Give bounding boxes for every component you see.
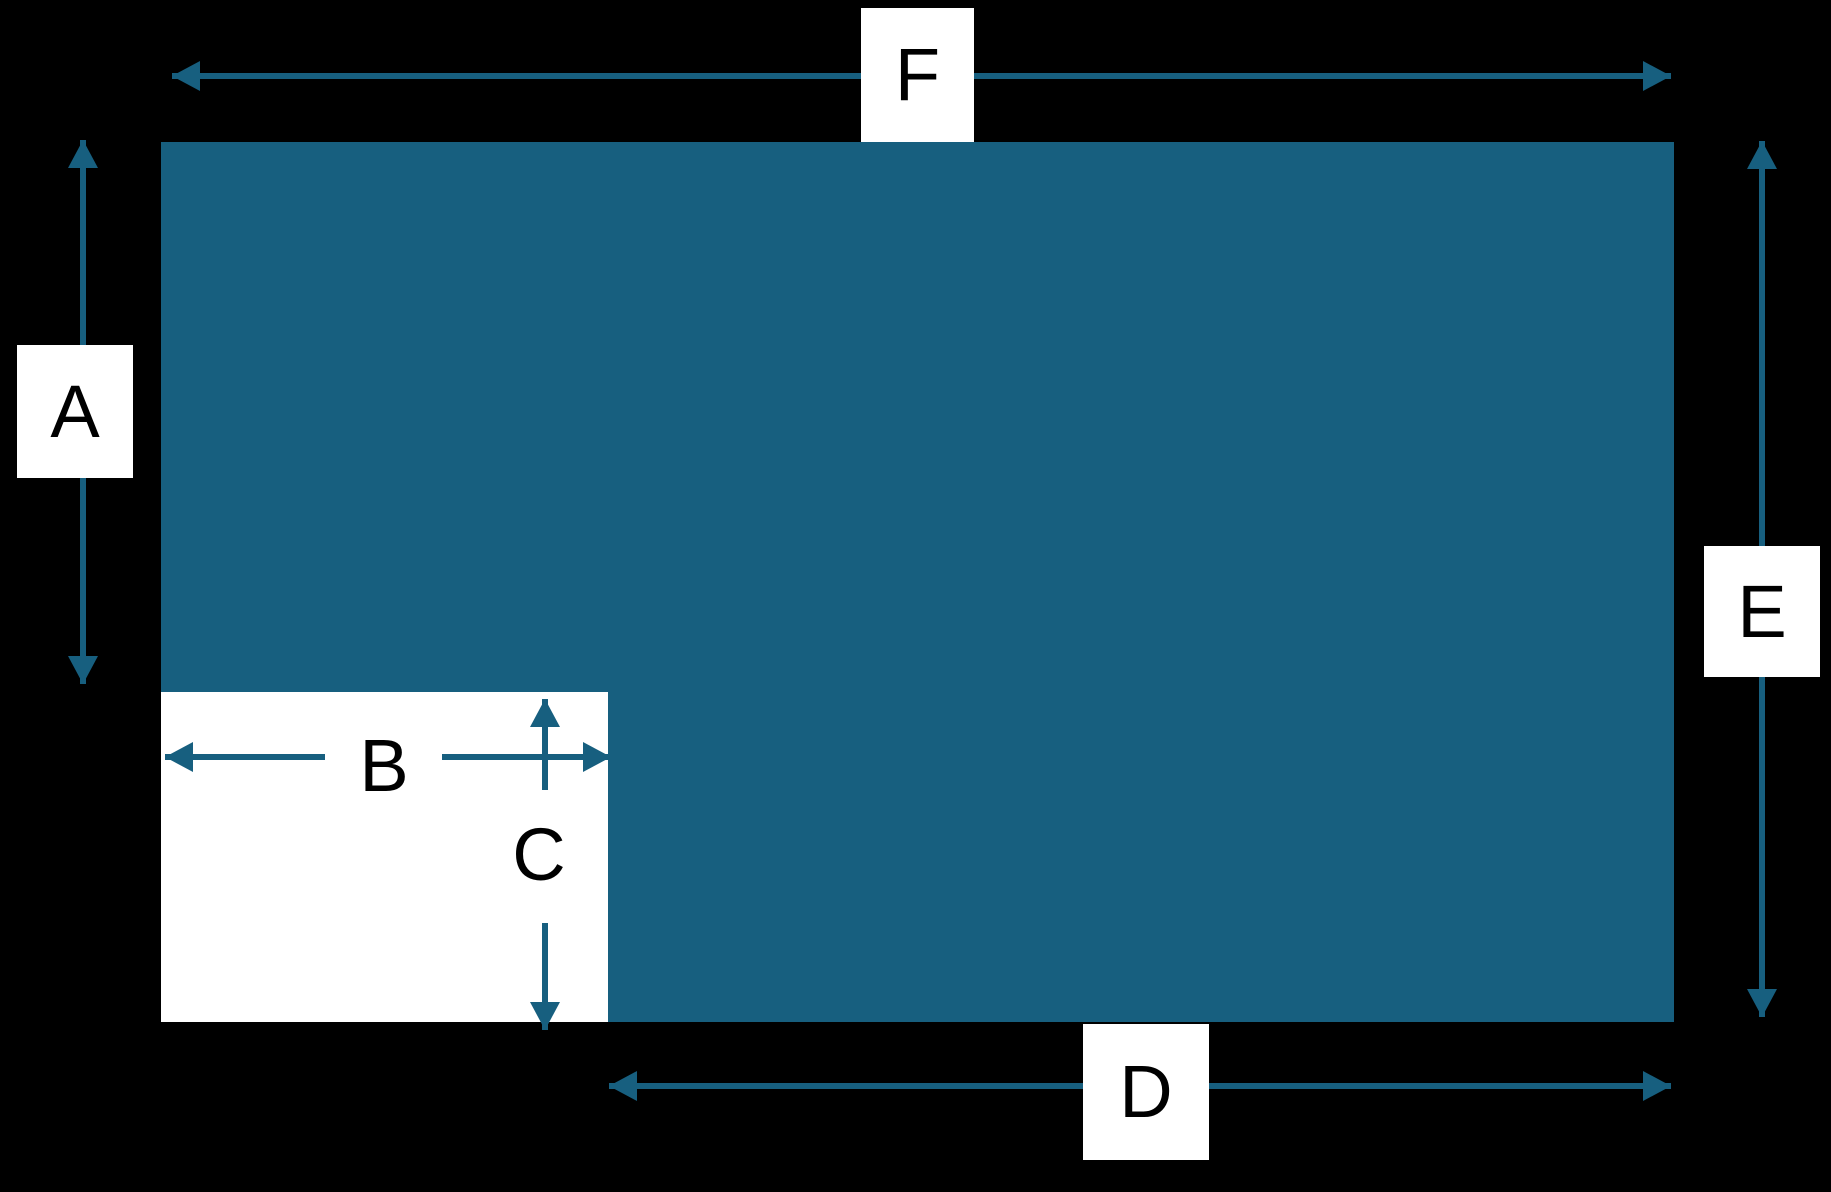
label-C-text: C [512,813,565,896]
label-F-text: F [895,38,940,112]
label-D: D [1083,1024,1209,1160]
label-A: A [17,345,133,478]
label-D-text: D [1119,1055,1172,1129]
label-F: F [861,8,974,142]
dimension-arrows [0,0,1831,1192]
diagram-canvas: F A E D B C [0,0,1831,1192]
label-B: B [359,729,408,803]
label-B-text: B [359,724,408,807]
label-A-text: A [50,375,99,449]
label-E: E [1704,546,1820,677]
label-E-text: E [1737,575,1786,649]
label-C: C [512,818,565,892]
